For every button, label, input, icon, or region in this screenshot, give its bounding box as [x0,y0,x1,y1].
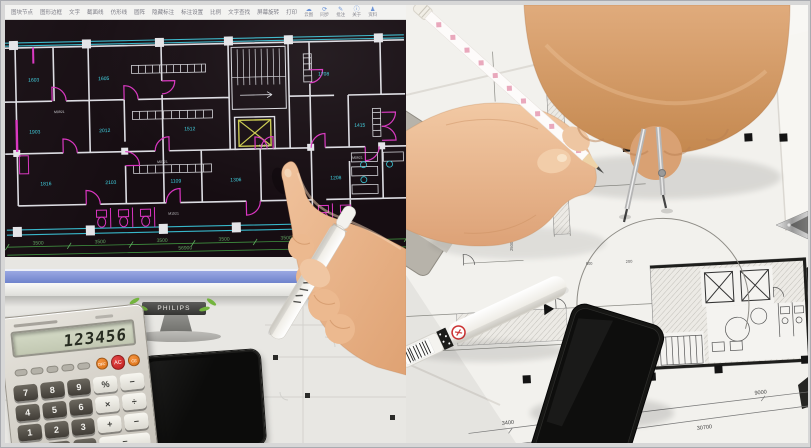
photo-frame: 图块节点 图形边框 文字 截面线 仿形线 圆阵 隐藏标注 标注设置 比例 文字查… [0,0,811,448]
monitor-bezel [5,283,406,297]
memory-key [46,365,59,373]
thumbnail [557,154,567,162]
svg-text:2012: 2012 [99,128,110,134]
calc-key: 5 [42,401,67,419]
calc-key: 1 [17,423,42,441]
desk-paper-edge [373,250,406,298]
photo-composite: 图块节点 图形边框 文字 截面线 仿形线 圆阵 隐藏标注 标注设置 比例 文字查… [5,5,808,443]
calc-key: 00 [46,440,71,443]
calc-key: 8 [40,381,65,399]
calc-key: × [95,395,120,413]
toolbar-menu-item: 图形边框 [40,8,62,16]
toolbar-menu-item: 圆阵 [134,8,145,16]
svg-text:1603: 1603 [28,77,39,83]
svg-text:M1021: M1021 [259,144,270,148]
dimension-label: 3500 [33,240,44,246]
monitor-screen: 1603 1605 1708 1903 2012 1512 1415 1816 … [5,20,406,257]
calc-key: − [120,372,145,390]
svg-text:1415: 1415 [354,123,365,129]
calculator: 123456 OFF AC CE 7 8 9 % − 4 5 6 [5,303,159,443]
svg-text:1512: 1512 [184,126,195,132]
calc-key: 6 [68,398,93,416]
svg-text:500: 500 [586,261,594,266]
svg-text:1306: 1306 [230,177,241,183]
desk-area: PHILIPS 123456 OFF AC CE [5,297,406,443]
dimension-label: 7000 [353,234,364,240]
toolbar-menu-item: 文字查找 [228,8,250,16]
calc-key: 9 [66,378,91,396]
cad-toolbar: 图块节点 图形边框 文字 截面线 仿形线 圆阵 隐藏标注 标注设置 比例 文字查… [5,5,406,20]
calc-key: + [97,415,122,433]
toolbar-menu-item: 标注设置 [181,8,203,16]
dimension-total-label: 56900 [178,245,192,251]
calc-key: % [93,375,118,393]
dimension-label: 3500 [218,237,229,243]
memory-key [61,363,74,371]
room-labels: 1603 1605 1708 1903 2012 1512 1415 1816 … [28,71,367,188]
window-symbols [131,52,381,173]
brand-text: PHILIPS [157,305,190,312]
toolbar-menu-item: 屏幕旋转 [257,8,279,16]
toolbar-icon-label: 关于 [352,13,361,18]
svg-text:1708: 1708 [318,71,329,77]
stairwell [231,46,286,109]
svg-text:1605: 1605 [98,76,109,82]
toolbar-menu-item: 图块节点 [11,8,33,16]
memory-key [14,368,27,376]
toolbar-menu-item: 仿形线 [111,8,128,16]
calc-key: 3 [70,418,95,436]
calculator-display-value: 123456 [63,325,127,351]
toolbar-icon-label: 批注 [336,13,345,18]
calc-key: 4 [15,403,40,421]
calc-key-equals: = [99,432,151,443]
svg-text:1903: 1903 [29,129,40,135]
bathroom-fixtures [15,41,351,230]
smartphone [142,349,266,443]
memory-key [30,366,43,374]
blueprint-scene: 2500 500 200 3400 9000 30700 [406,5,808,443]
toolbar-menu-item: 文字 [69,8,80,16]
ce-key: CE [128,354,141,367]
dimension-label: 3500 [156,238,167,244]
toolbar-menu-item: 隐藏标注 [152,8,174,16]
svg-text:M0921: M0921 [54,110,65,114]
toolbar-icon-item: ✎批注 [336,7,345,18]
calc-key: ÷ [122,392,147,410]
toolbar-menu-item: 截面线 [87,8,104,16]
toolbar-icon-item: ⓘ关于 [352,7,361,18]
calc-key: − [124,412,149,430]
cad-floor-plan: 1603 1605 1708 1903 2012 1512 1415 1816 … [5,20,406,257]
svg-text:2103: 2103 [105,180,116,186]
toolbar-icon-item: ♟资料 [368,7,377,18]
toolbar-icon-label: 资料 [368,13,377,18]
calculator-keypad: 7 8 9 % − 4 5 6 × ÷ 1 2 3 + − 0 00 [13,372,151,443]
dimension-label: 3500 [280,235,291,241]
calc-key: . [73,438,98,443]
dimension-label: 3500 [94,239,105,245]
philips-logo: PHILIPS [142,302,206,315]
calc-key: 7 [13,384,38,402]
clear-key: AC [110,354,126,370]
door-arcs [52,68,398,219]
svg-text:M0721: M0721 [157,160,168,164]
svg-text:1208: 1208 [330,175,341,181]
svg-text:1109: 1109 [170,179,181,185]
compass-screw [659,170,666,177]
svg-text:1816: 1816 [40,181,51,187]
svg-text:M0921: M0921 [352,156,363,160]
toolbar-menu-item: 打印 [286,8,297,16]
calc-key: 2 [44,421,69,439]
monitor-blue-strip [5,269,406,283]
toolbar-icon-item: ☁云图 [304,7,313,18]
toolbar-icon-item: ⟳同步 [320,7,329,18]
svg-text:200: 200 [626,259,634,264]
left-photo: 图块节点 图形边框 文字 截面线 仿形线 圆阵 隐藏标注 标注设置 比例 文字查… [5,5,406,443]
calculator-brand-mark [14,320,58,328]
dimension-lines: 3500 3500 3500 3500 3500 7000 56900 [5,233,406,255]
calculator-model-mark [95,314,113,319]
power-key: OFF [95,357,108,370]
memory-key [77,361,90,369]
toolbar-icon-label: 同步 [320,13,329,18]
svg-text:M1521: M1521 [168,212,179,216]
toolbar-icon-label: 云图 [304,13,313,18]
toolbar-menu-item: 比例 [210,8,221,16]
right-photo: 2500 500 200 3400 9000 30700 [406,5,808,443]
